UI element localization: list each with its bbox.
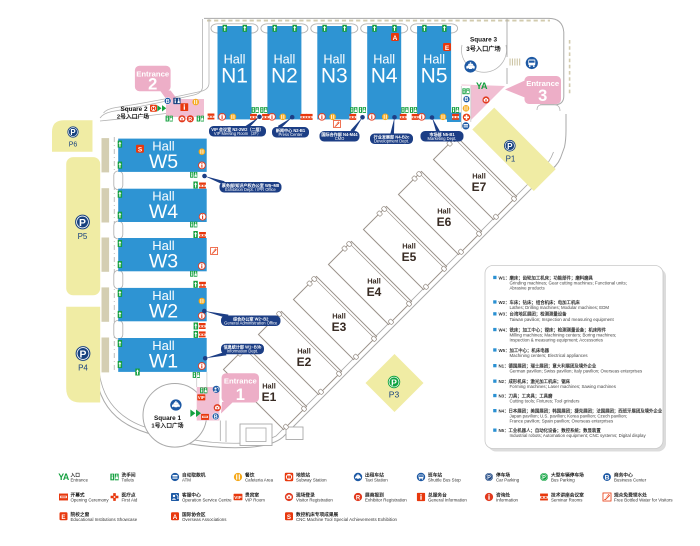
svg-text:Operation Service Centre: Operation Service Centre <box>182 498 232 503</box>
svg-text:A: A <box>173 514 178 521</box>
svg-text:Cutting tools; Fixtures; Tool: Cutting tools; Fixtures; Tool grinders <box>510 399 581 404</box>
svg-text:Development Dept.: Development Dept. <box>374 139 409 144</box>
svg-text:Toilets: Toilets <box>122 478 135 483</box>
svg-text:Cafeteria Area: Cafeteria Area <box>245 478 274 483</box>
svg-text:E: E <box>61 514 65 521</box>
svg-text:First Aid: First Aid <box>122 498 138 503</box>
svg-text:2号入口广场: 2号入口广场 <box>117 113 149 121</box>
svg-text:E: E <box>445 45 450 52</box>
svg-text:Forming machines; Laser machin: Forming machines; Laser machines; Sawing… <box>510 384 617 389</box>
svg-text:Opening Ceremony: Opening Ceremony <box>71 498 110 503</box>
svg-text:Seminar Rooms: Seminar Rooms <box>551 498 583 503</box>
svg-text:N2: N2 <box>271 65 298 88</box>
svg-text:Educational Institutions Showc: Educational Institutions Showcase <box>71 517 138 522</box>
svg-text:P5: P5 <box>78 232 88 241</box>
svg-text:Taiwan pavilion; Inspection an: Taiwan pavilion; Inspection and measurin… <box>510 317 615 322</box>
svg-text:Overseas Associations: Overseas Associations <box>182 517 227 522</box>
svg-text:General Administration Office: General Administration Office <box>224 321 278 326</box>
svg-text:Square 3: Square 3 <box>470 37 497 44</box>
svg-text:Exhibitor Registration: Exhibitor Registration <box>365 498 407 503</box>
svg-text:P6: P6 <box>69 142 78 149</box>
svg-text:CMO: CMO <box>335 136 345 141</box>
svg-text:Abrasive products: Abrasive products <box>510 285 546 290</box>
svg-text:E7: E7 <box>472 180 487 194</box>
svg-text:2: 2 <box>148 76 157 94</box>
svg-text:N3: N3 <box>321 65 348 88</box>
svg-text:General Information: General Information <box>428 498 467 503</box>
svg-text:VIP Room: VIP Room <box>245 498 265 503</box>
svg-text:Entrance: Entrance <box>71 478 89 483</box>
svg-text:W5: W5 <box>149 151 178 173</box>
svg-text:Car Parking: Car Parking <box>496 478 520 483</box>
svg-text:3: 3 <box>538 87 547 105</box>
svg-text:P3: P3 <box>389 390 400 400</box>
svg-text:P1: P1 <box>506 155 516 164</box>
svg-text:Lathes; Drilling machines; Mod: Lathes; Drilling machines; Modular machi… <box>510 305 610 310</box>
svg-text:Free Bottled Water for Visitor: Free Bottled Water for Visitors <box>614 498 673 503</box>
svg-text:Shuttle Bus Stop: Shuttle Bus Stop <box>428 478 461 483</box>
svg-text:Visitor Registration: Visitor Registration <box>296 498 333 503</box>
svg-text:Press Center: Press Center <box>279 132 304 137</box>
svg-text:Taxi Station: Taxi Station <box>365 478 388 483</box>
svg-text:E4: E4 <box>367 285 382 299</box>
svg-text:Bus Parking: Bus Parking <box>551 478 575 483</box>
svg-text:N1: N1 <box>221 65 248 88</box>
svg-text:W2: W2 <box>149 300 178 322</box>
svg-text:W1: W1 <box>149 351 178 373</box>
svg-text:W4: W4 <box>149 201 178 223</box>
svg-text:W3: W3 <box>149 251 178 273</box>
svg-text:N5: N5 <box>421 65 448 88</box>
svg-text:1: 1 <box>236 386 245 404</box>
svg-text:YA: YA <box>58 472 70 482</box>
svg-text:Marketing Dept.: Marketing Dept. <box>428 136 457 141</box>
svg-text:Square 2: Square 2 <box>121 106 148 113</box>
svg-text:Machining centers; Electrical: Machining centers; Electrical appliances <box>510 353 589 358</box>
svg-text:E2: E2 <box>297 355 312 369</box>
svg-text:CNC Machine Tool Special Achie: CNC Machine Tool Special Achievements Ex… <box>296 517 398 522</box>
svg-text:A: A <box>393 35 398 42</box>
svg-text:VIP Meeting Room（2F）: VIP Meeting Room（2F） <box>214 131 261 136</box>
svg-text:N4: N4 <box>371 65 398 88</box>
svg-text:German pavilion; Swiss pavilio: German pavilion; Swiss pavilion; Italy p… <box>510 369 644 374</box>
svg-text:E3: E3 <box>332 320 347 334</box>
svg-text:S: S <box>287 514 291 521</box>
svg-text:S: S <box>138 147 143 154</box>
svg-text:Business Center: Business Center <box>614 478 647 483</box>
svg-text:P4: P4 <box>78 364 88 373</box>
svg-text:3号入口广场: 3号入口广场 <box>466 45 500 53</box>
svg-text:Entrance: Entrance <box>224 377 258 386</box>
svg-text:E1: E1 <box>262 390 277 404</box>
svg-text:Exhibition Dept. / IPR Office: Exhibition Dept. / IPR Office <box>225 187 276 192</box>
svg-text:France pavilion; Spain pavilio: France pavilion; Spain pavilion; Oversea… <box>510 419 615 424</box>
svg-text:Industrial robots; Automation: Industrial robots; Automation equipment;… <box>510 433 647 438</box>
svg-text:Square 1: Square 1 <box>154 415 181 422</box>
svg-text:ATM: ATM <box>182 478 191 483</box>
svg-text:Inspection & measuring equipme: Inspection & measuring equipment; Access… <box>510 338 604 343</box>
svg-text:1号入口广场: 1号入口广场 <box>151 422 183 430</box>
svg-text:Information Dept.: Information Dept. <box>227 349 258 354</box>
svg-text:E6: E6 <box>437 215 452 229</box>
svg-text:Information: Information <box>496 498 519 503</box>
svg-text:Subway Station: Subway Station <box>296 478 327 483</box>
svg-text:YA: YA <box>476 81 488 91</box>
svg-text:E5: E5 <box>402 250 417 264</box>
